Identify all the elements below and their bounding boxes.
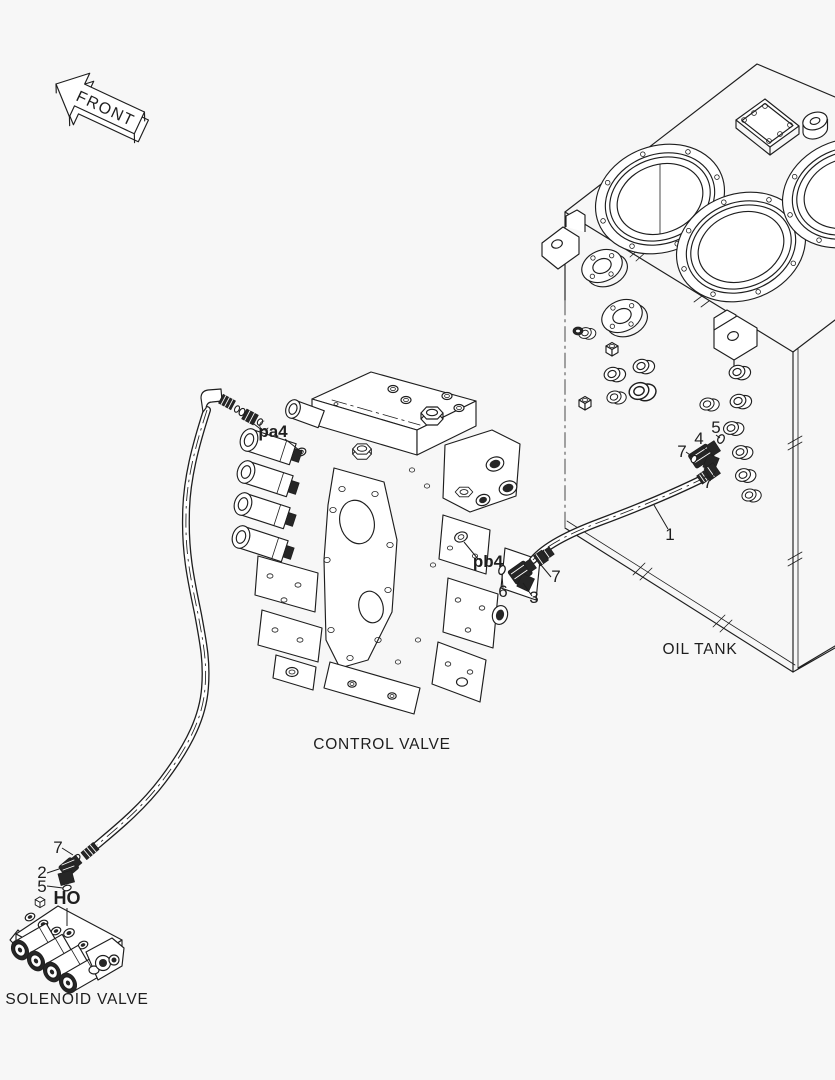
callout-7-solenoid-washer: 7 bbox=[53, 838, 62, 857]
callout-3-valve-elbow: 3 bbox=[529, 588, 538, 607]
hose-tank-to-valve bbox=[498, 434, 728, 596]
callout-7-valve-hose-nut: 7 bbox=[551, 567, 560, 586]
tank-left-bracket bbox=[542, 210, 585, 269]
valve-bottom-foot bbox=[324, 662, 420, 714]
front-direction-arrow: FRONT bbox=[42, 62, 153, 153]
callout-7-tank-washer: 7 bbox=[677, 442, 686, 461]
callout-6-valve-o-ring: 6 bbox=[498, 582, 507, 601]
valve-hex-plug-large bbox=[421, 407, 443, 425]
tank-cover-plate bbox=[736, 99, 799, 155]
solenoid-valve-label: SOLENOID VALVE bbox=[5, 991, 148, 1008]
control-valve-label: CONTROL VALVE bbox=[313, 736, 451, 753]
parts-diagram-page: FRONT bbox=[0, 0, 835, 1080]
hose-valve-to-solenoid bbox=[58, 389, 268, 892]
tank-flange-lower bbox=[597, 292, 653, 344]
callout-5-solenoid-o-ring: 5 bbox=[37, 877, 46, 896]
callout-7-tank-hose-nut: 7 bbox=[703, 473, 712, 492]
valve-center-plate bbox=[324, 468, 397, 668]
oil-tank-label: OIL TANK bbox=[662, 641, 737, 658]
valve-misc-bolts bbox=[395, 468, 435, 664]
valve-left-blocks bbox=[255, 556, 322, 690]
callout-1-hose: 1 bbox=[665, 525, 674, 544]
callout-5-tank-o-ring: 5 bbox=[711, 418, 720, 437]
tank-cap bbox=[800, 109, 829, 139]
oil-tank: OIL TANK bbox=[542, 64, 835, 672]
valve-hex-plug-small bbox=[353, 444, 372, 459]
pa4-elbow-fitting bbox=[201, 389, 222, 412]
solenoid-valve: SOLENOID VALVE bbox=[5, 897, 148, 1008]
tank-square-nut-1 bbox=[606, 343, 618, 357]
tank-square-nut-2 bbox=[579, 397, 591, 411]
tank-right-bracket bbox=[714, 310, 757, 367]
solenoid-top-nut bbox=[35, 897, 45, 908]
port-label-ho: HO bbox=[54, 888, 81, 908]
tank-flange-upper bbox=[577, 242, 633, 294]
parts-diagram: FRONT bbox=[0, 0, 835, 1080]
port-label-pb4: pb4 bbox=[473, 552, 504, 571]
callout-4-tank-elbow: 4 bbox=[694, 429, 703, 448]
port-label-pa4: pa4 bbox=[258, 422, 288, 441]
